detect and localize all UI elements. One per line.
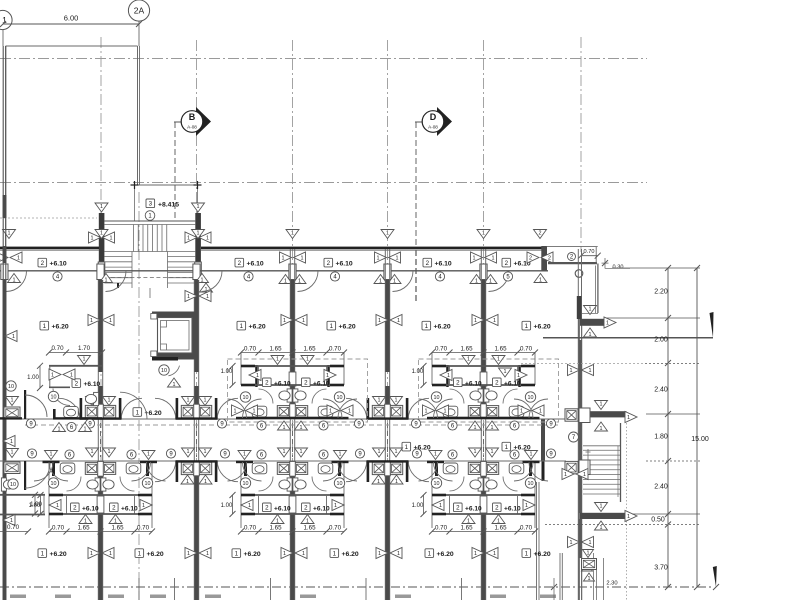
- svg-text:1: 1: [187, 236, 190, 242]
- svg-text:1: 1: [570, 540, 573, 546]
- svg-text:1: 1: [333, 551, 337, 558]
- svg-text:1: 1: [482, 231, 485, 237]
- svg-text:1: 1: [300, 425, 303, 431]
- svg-text:1: 1: [348, 409, 351, 415]
- svg-text:1: 1: [41, 551, 45, 558]
- svg-text:1: 1: [583, 472, 586, 478]
- svg-text:1: 1: [589, 540, 592, 546]
- svg-text:1: 1: [497, 357, 500, 363]
- svg-text:+6.10: +6.10: [504, 380, 521, 387]
- svg-text:1: 1: [204, 479, 207, 485]
- svg-text:1: 1: [256, 373, 259, 379]
- svg-text:10: 10: [337, 395, 343, 401]
- svg-text:1: 1: [90, 318, 93, 324]
- svg-text:+6.10: +6.10: [247, 261, 264, 268]
- svg-text:1: 1: [142, 503, 145, 509]
- svg-text:1: 1: [58, 426, 61, 432]
- svg-text:1: 1: [108, 398, 111, 404]
- svg-text:1: 1: [302, 551, 305, 557]
- svg-text:2: 2: [304, 505, 308, 512]
- svg-text:2: 2: [73, 505, 77, 512]
- svg-text:1: 1: [378, 398, 381, 404]
- svg-text:1: 1: [491, 425, 494, 431]
- svg-text:2: 2: [265, 380, 269, 387]
- svg-text:0.30: 0.30: [613, 264, 624, 270]
- svg-text:1: 1: [397, 318, 400, 324]
- svg-text:+6.10: +6.10: [313, 505, 330, 512]
- svg-text:2: 2: [456, 505, 460, 512]
- svg-text:+6.20: +6.20: [342, 551, 359, 558]
- svg-text:+6.10: +6.10: [465, 380, 482, 387]
- svg-text:15.00: 15.00: [691, 436, 709, 443]
- svg-text:3.70: 3.70: [654, 565, 668, 572]
- svg-text:1: 1: [243, 452, 246, 458]
- svg-text:1: 1: [240, 323, 244, 330]
- svg-text:1: 1: [10, 439, 13, 445]
- svg-text:1.00: 1.00: [27, 375, 39, 381]
- svg-text:+6.10: +6.10: [336, 261, 353, 268]
- svg-text:1: 1: [283, 449, 286, 455]
- svg-text:1: 1: [201, 277, 204, 283]
- svg-text:1: 1: [283, 425, 286, 431]
- svg-text:1: 1: [379, 278, 382, 284]
- svg-text:1: 1: [492, 256, 495, 262]
- svg-text:10: 10: [51, 481, 57, 487]
- svg-text:1.65: 1.65: [460, 345, 473, 352]
- svg-text:1.65: 1.65: [269, 345, 282, 352]
- svg-text:A-08: A-08: [187, 125, 197, 130]
- svg-text:0.70: 0.70: [435, 524, 448, 531]
- svg-text:1.65: 1.65: [460, 524, 473, 531]
- svg-text:1.65: 1.65: [269, 524, 282, 531]
- svg-text:10: 10: [434, 395, 440, 401]
- svg-text:+6.10: +6.10: [504, 505, 521, 512]
- svg-text:1.65: 1.65: [494, 524, 507, 531]
- svg-text:1: 1: [405, 444, 409, 451]
- svg-text:1: 1: [187, 398, 190, 404]
- svg-text:0.70: 0.70: [329, 524, 342, 531]
- svg-text:1: 1: [627, 514, 630, 520]
- svg-text:10: 10: [51, 394, 57, 400]
- svg-text:1: 1: [339, 452, 342, 458]
- svg-text:1: 1: [447, 373, 450, 379]
- svg-text:A-08: A-08: [428, 125, 438, 130]
- svg-text:1: 1: [283, 551, 286, 557]
- svg-text:1: 1: [589, 307, 592, 313]
- svg-text:1: 1: [378, 318, 381, 324]
- svg-text:2: 2: [539, 231, 542, 237]
- svg-text:10: 10: [434, 481, 440, 487]
- svg-text:1: 1: [187, 294, 190, 300]
- svg-text:1: 1: [474, 425, 477, 431]
- svg-text:0.70: 0.70: [584, 249, 595, 255]
- svg-text:1: 1: [186, 479, 189, 485]
- svg-text:1: 1: [8, 231, 11, 237]
- svg-text:1: 1: [206, 236, 209, 242]
- svg-text:3: 3: [149, 201, 153, 208]
- svg-text:1: 1: [491, 449, 494, 455]
- svg-text:1: 1: [326, 373, 329, 379]
- svg-text:1: 1: [301, 256, 304, 262]
- svg-text:1.00: 1.00: [221, 369, 233, 375]
- svg-text:1: 1: [378, 551, 381, 557]
- svg-text:2: 2: [426, 260, 430, 267]
- svg-text:1: 1: [282, 256, 285, 262]
- svg-text:1: 1: [600, 525, 603, 531]
- svg-text:1: 1: [386, 231, 389, 237]
- svg-text:10: 10: [8, 384, 14, 390]
- svg-text:1: 1: [564, 472, 567, 478]
- svg-text:1.80: 1.80: [654, 434, 668, 441]
- svg-text:1: 1: [206, 294, 209, 300]
- svg-text:10: 10: [145, 481, 151, 487]
- svg-text:1: 1: [11, 398, 14, 404]
- svg-text:1: 1: [493, 551, 496, 557]
- svg-text:1: 1: [298, 278, 301, 284]
- svg-text:1: 1: [91, 449, 94, 455]
- svg-text:2: 2: [495, 505, 499, 512]
- svg-text:1: 1: [525, 323, 529, 330]
- svg-text:1: 1: [589, 332, 592, 338]
- svg-text:1.00: 1.00: [221, 503, 233, 509]
- svg-text:1: 1: [70, 373, 73, 379]
- svg-text:+6.20: +6.20: [434, 324, 451, 331]
- svg-text:1: 1: [395, 479, 398, 485]
- svg-text:1: 1: [83, 357, 86, 363]
- svg-text:1: 1: [606, 321, 609, 327]
- svg-text:1: 1: [84, 426, 87, 432]
- svg-text:+6.20: +6.20: [534, 324, 551, 331]
- svg-text:2: 2: [304, 380, 308, 387]
- svg-text:1.65: 1.65: [494, 345, 507, 352]
- svg-text:1: 1: [109, 318, 112, 324]
- svg-text:1: 1: [395, 398, 398, 404]
- svg-text:1: 1: [108, 449, 111, 455]
- svg-text:1: 1: [474, 449, 477, 455]
- svg-text:+6.10: +6.10: [274, 505, 291, 512]
- svg-text:1: 1: [235, 551, 239, 558]
- svg-text:10: 10: [337, 481, 343, 487]
- svg-text:1: 1: [51, 373, 54, 379]
- svg-text:1: 1: [13, 277, 16, 283]
- svg-text:2: 2: [456, 380, 460, 387]
- svg-text:1: 1: [600, 426, 603, 432]
- svg-text:1: 1: [0, 256, 1, 262]
- svg-text:1: 1: [530, 452, 533, 458]
- svg-text:1: 1: [276, 357, 279, 363]
- svg-text:+6.20: +6.20: [52, 324, 69, 331]
- svg-text:1: 1: [197, 204, 200, 210]
- svg-text:1: 1: [330, 323, 334, 330]
- svg-text:2: 2: [238, 260, 242, 267]
- svg-text:1: 1: [253, 409, 256, 415]
- svg-text:1: 1: [248, 503, 251, 509]
- svg-text:+6.10: +6.10: [82, 505, 99, 512]
- svg-text:1: 1: [378, 449, 381, 455]
- svg-text:1: 1: [50, 452, 53, 458]
- svg-text:1: 1: [474, 551, 477, 557]
- svg-text:1: 1: [395, 449, 398, 455]
- svg-text:1: 1: [329, 409, 332, 415]
- svg-text:1: 1: [474, 318, 477, 324]
- svg-text:1: 1: [110, 236, 113, 242]
- svg-text:1: 1: [473, 256, 476, 262]
- svg-text:1: 1: [334, 503, 337, 509]
- svg-text:+8.415: +8.415: [158, 202, 179, 209]
- svg-text:1: 1: [539, 409, 542, 415]
- svg-text:+6.20: +6.20: [147, 551, 164, 558]
- svg-text:1.00: 1.00: [412, 503, 424, 509]
- svg-text:+6.20: +6.20: [249, 324, 266, 331]
- svg-text:2.40: 2.40: [654, 387, 668, 394]
- svg-text:2: 2: [529, 256, 532, 262]
- svg-text:1: 1: [505, 444, 509, 451]
- svg-text:1.65: 1.65: [111, 524, 124, 531]
- svg-text:+6.20: +6.20: [534, 551, 551, 558]
- svg-text:1: 1: [136, 409, 140, 416]
- svg-text:+6.10: +6.10: [465, 505, 482, 512]
- svg-text:1: 1: [204, 449, 207, 455]
- svg-text:+6.10: +6.10: [274, 380, 291, 387]
- svg-text:B: B: [189, 112, 196, 122]
- svg-text:+6.10: +6.10: [84, 381, 101, 388]
- svg-text:1: 1: [377, 479, 380, 485]
- svg-text:1.65: 1.65: [77, 524, 90, 531]
- svg-text:1: 1: [600, 402, 603, 408]
- svg-text:1: 1: [439, 503, 442, 509]
- svg-text:1: 1: [90, 551, 93, 557]
- svg-text:1: 1: [434, 452, 437, 458]
- svg-text:1: 1: [105, 277, 108, 283]
- svg-text:1: 1: [396, 256, 399, 262]
- svg-text:10: 10: [243, 481, 249, 487]
- svg-text:0.70: 0.70: [520, 345, 533, 352]
- svg-text:1: 1: [187, 551, 190, 557]
- svg-text:1: 1: [425, 409, 428, 415]
- svg-text:0.70: 0.70: [329, 345, 342, 352]
- svg-text:1: 1: [587, 551, 590, 557]
- svg-text:+6.10: +6.10: [435, 261, 452, 268]
- svg-text:1: 1: [428, 551, 432, 558]
- svg-text:1: 1: [12, 334, 15, 340]
- svg-text:2.00: 2.00: [654, 337, 668, 344]
- svg-text:2: 2: [548, 256, 551, 262]
- svg-text:1: 1: [475, 278, 478, 284]
- svg-text:1: 1: [56, 503, 59, 509]
- svg-text:1: 1: [138, 551, 142, 558]
- svg-text:0.70: 0.70: [435, 345, 448, 352]
- svg-text:2: 2: [112, 505, 116, 512]
- svg-text:1: 1: [588, 576, 591, 582]
- svg-text:1: 1: [393, 278, 396, 284]
- svg-text:1: 1: [539, 277, 542, 283]
- svg-text:2A: 2A: [134, 6, 145, 16]
- svg-text:D: D: [430, 112, 437, 122]
- svg-text:2: 2: [327, 260, 331, 267]
- svg-text:1: 1: [467, 357, 470, 363]
- svg-text:0.70: 0.70: [520, 524, 533, 531]
- svg-text:1: 1: [147, 452, 150, 458]
- svg-text:1: 1: [187, 449, 190, 455]
- svg-text:1: 1: [517, 373, 520, 379]
- svg-text:1: 1: [11, 450, 14, 456]
- svg-text:1: 1: [100, 231, 103, 237]
- svg-text:1: 1: [520, 409, 523, 415]
- svg-text:1: 1: [17, 256, 20, 262]
- svg-text:1: 1: [489, 278, 492, 284]
- svg-text:1: 1: [197, 231, 200, 237]
- svg-text:2: 2: [41, 260, 45, 267]
- svg-text:2: 2: [75, 381, 79, 388]
- svg-text:1: 1: [444, 409, 447, 415]
- svg-text:+6.10: +6.10: [121, 505, 138, 512]
- svg-text:0.70: 0.70: [137, 524, 150, 531]
- svg-text:1: 1: [173, 382, 176, 388]
- svg-text:0.50: 0.50: [651, 517, 665, 524]
- svg-text:1: 1: [109, 551, 112, 557]
- svg-text:1: 1: [300, 449, 303, 455]
- svg-text:1: 1: [291, 231, 294, 237]
- svg-text:1: 1: [397, 551, 400, 557]
- svg-text:1: 1: [493, 318, 496, 324]
- svg-text:1: 1: [589, 368, 592, 374]
- svg-text:1: 1: [100, 204, 103, 210]
- svg-text:1: 1: [306, 357, 309, 363]
- svg-text:1: 1: [525, 503, 528, 509]
- svg-text:2: 2: [505, 260, 509, 267]
- svg-text:10: 10: [243, 395, 249, 401]
- svg-text:0.70: 0.70: [244, 524, 257, 531]
- svg-text:1: 1: [377, 256, 380, 262]
- svg-text:10: 10: [528, 481, 534, 487]
- svg-text:10: 10: [528, 395, 534, 401]
- svg-text:2.30: 2.30: [606, 581, 617, 587]
- svg-text:2.40: 2.40: [654, 484, 668, 491]
- svg-text:1: 1: [91, 236, 94, 242]
- svg-text:2.20: 2.20: [654, 289, 668, 296]
- svg-text:1.00: 1.00: [30, 502, 42, 508]
- svg-text:1: 1: [206, 551, 209, 557]
- svg-text:2: 2: [265, 505, 269, 512]
- svg-text:1: 1: [425, 323, 429, 330]
- svg-text:2: 2: [495, 380, 499, 387]
- svg-text:0.70: 0.70: [244, 345, 257, 352]
- svg-text:6.00: 6.00: [64, 14, 79, 23]
- svg-text:+6.10: +6.10: [50, 261, 67, 268]
- svg-text:1.65: 1.65: [303, 524, 316, 531]
- svg-text:10: 10: [10, 482, 16, 488]
- svg-text:+6.20: +6.20: [437, 551, 454, 558]
- svg-text:1: 1: [284, 278, 287, 284]
- svg-text:1: 1: [43, 323, 47, 330]
- svg-text:0.70: 0.70: [51, 345, 64, 352]
- svg-text:1: 1: [234, 409, 237, 415]
- svg-text:+6.20: +6.20: [50, 551, 67, 558]
- svg-text:1: 1: [204, 398, 207, 404]
- svg-text:1: 1: [627, 415, 630, 421]
- svg-text:1: 1: [302, 318, 305, 324]
- svg-text:+6.10: +6.10: [313, 380, 330, 387]
- svg-text:1.65: 1.65: [303, 345, 316, 352]
- svg-text:1.70: 1.70: [78, 345, 91, 352]
- svg-text:+6.20: +6.20: [339, 324, 356, 331]
- svg-text:+6.20: +6.20: [244, 551, 261, 558]
- svg-text:0.70: 0.70: [7, 524, 20, 531]
- svg-text:10: 10: [161, 368, 167, 374]
- svg-text:1: 1: [525, 551, 529, 558]
- svg-text:1: 1: [570, 368, 573, 374]
- svg-text:1.00: 1.00: [412, 369, 424, 375]
- svg-text:1: 1: [600, 504, 603, 510]
- svg-text:0.70: 0.70: [52, 524, 65, 531]
- svg-text:1: 1: [504, 369, 507, 375]
- svg-text:1: 1: [283, 318, 286, 324]
